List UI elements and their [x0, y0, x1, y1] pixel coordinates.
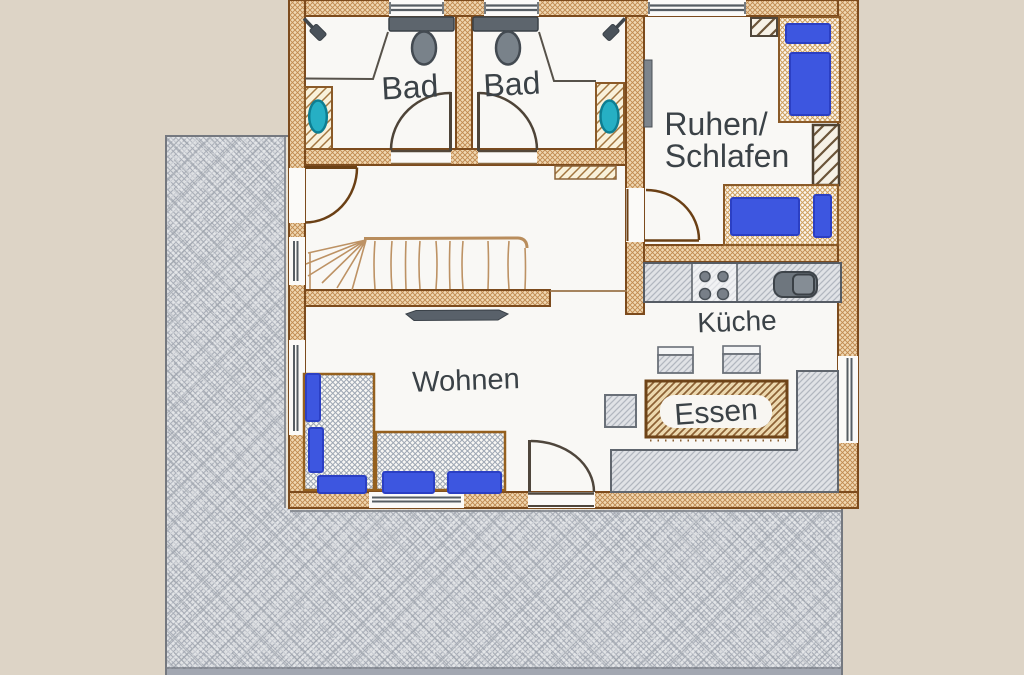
- svg-text:Essen: Essen: [673, 393, 758, 432]
- svg-text:Schlafen: Schlafen: [665, 138, 790, 174]
- svg-text:Bad: Bad: [380, 68, 439, 107]
- svg-text:Ruhen/: Ruhen/: [664, 106, 767, 142]
- svg-text:Wohnen: Wohnen: [412, 363, 521, 399]
- svg-text:Küche: Küche: [697, 305, 777, 339]
- svg-text:Bad: Bad: [482, 65, 541, 104]
